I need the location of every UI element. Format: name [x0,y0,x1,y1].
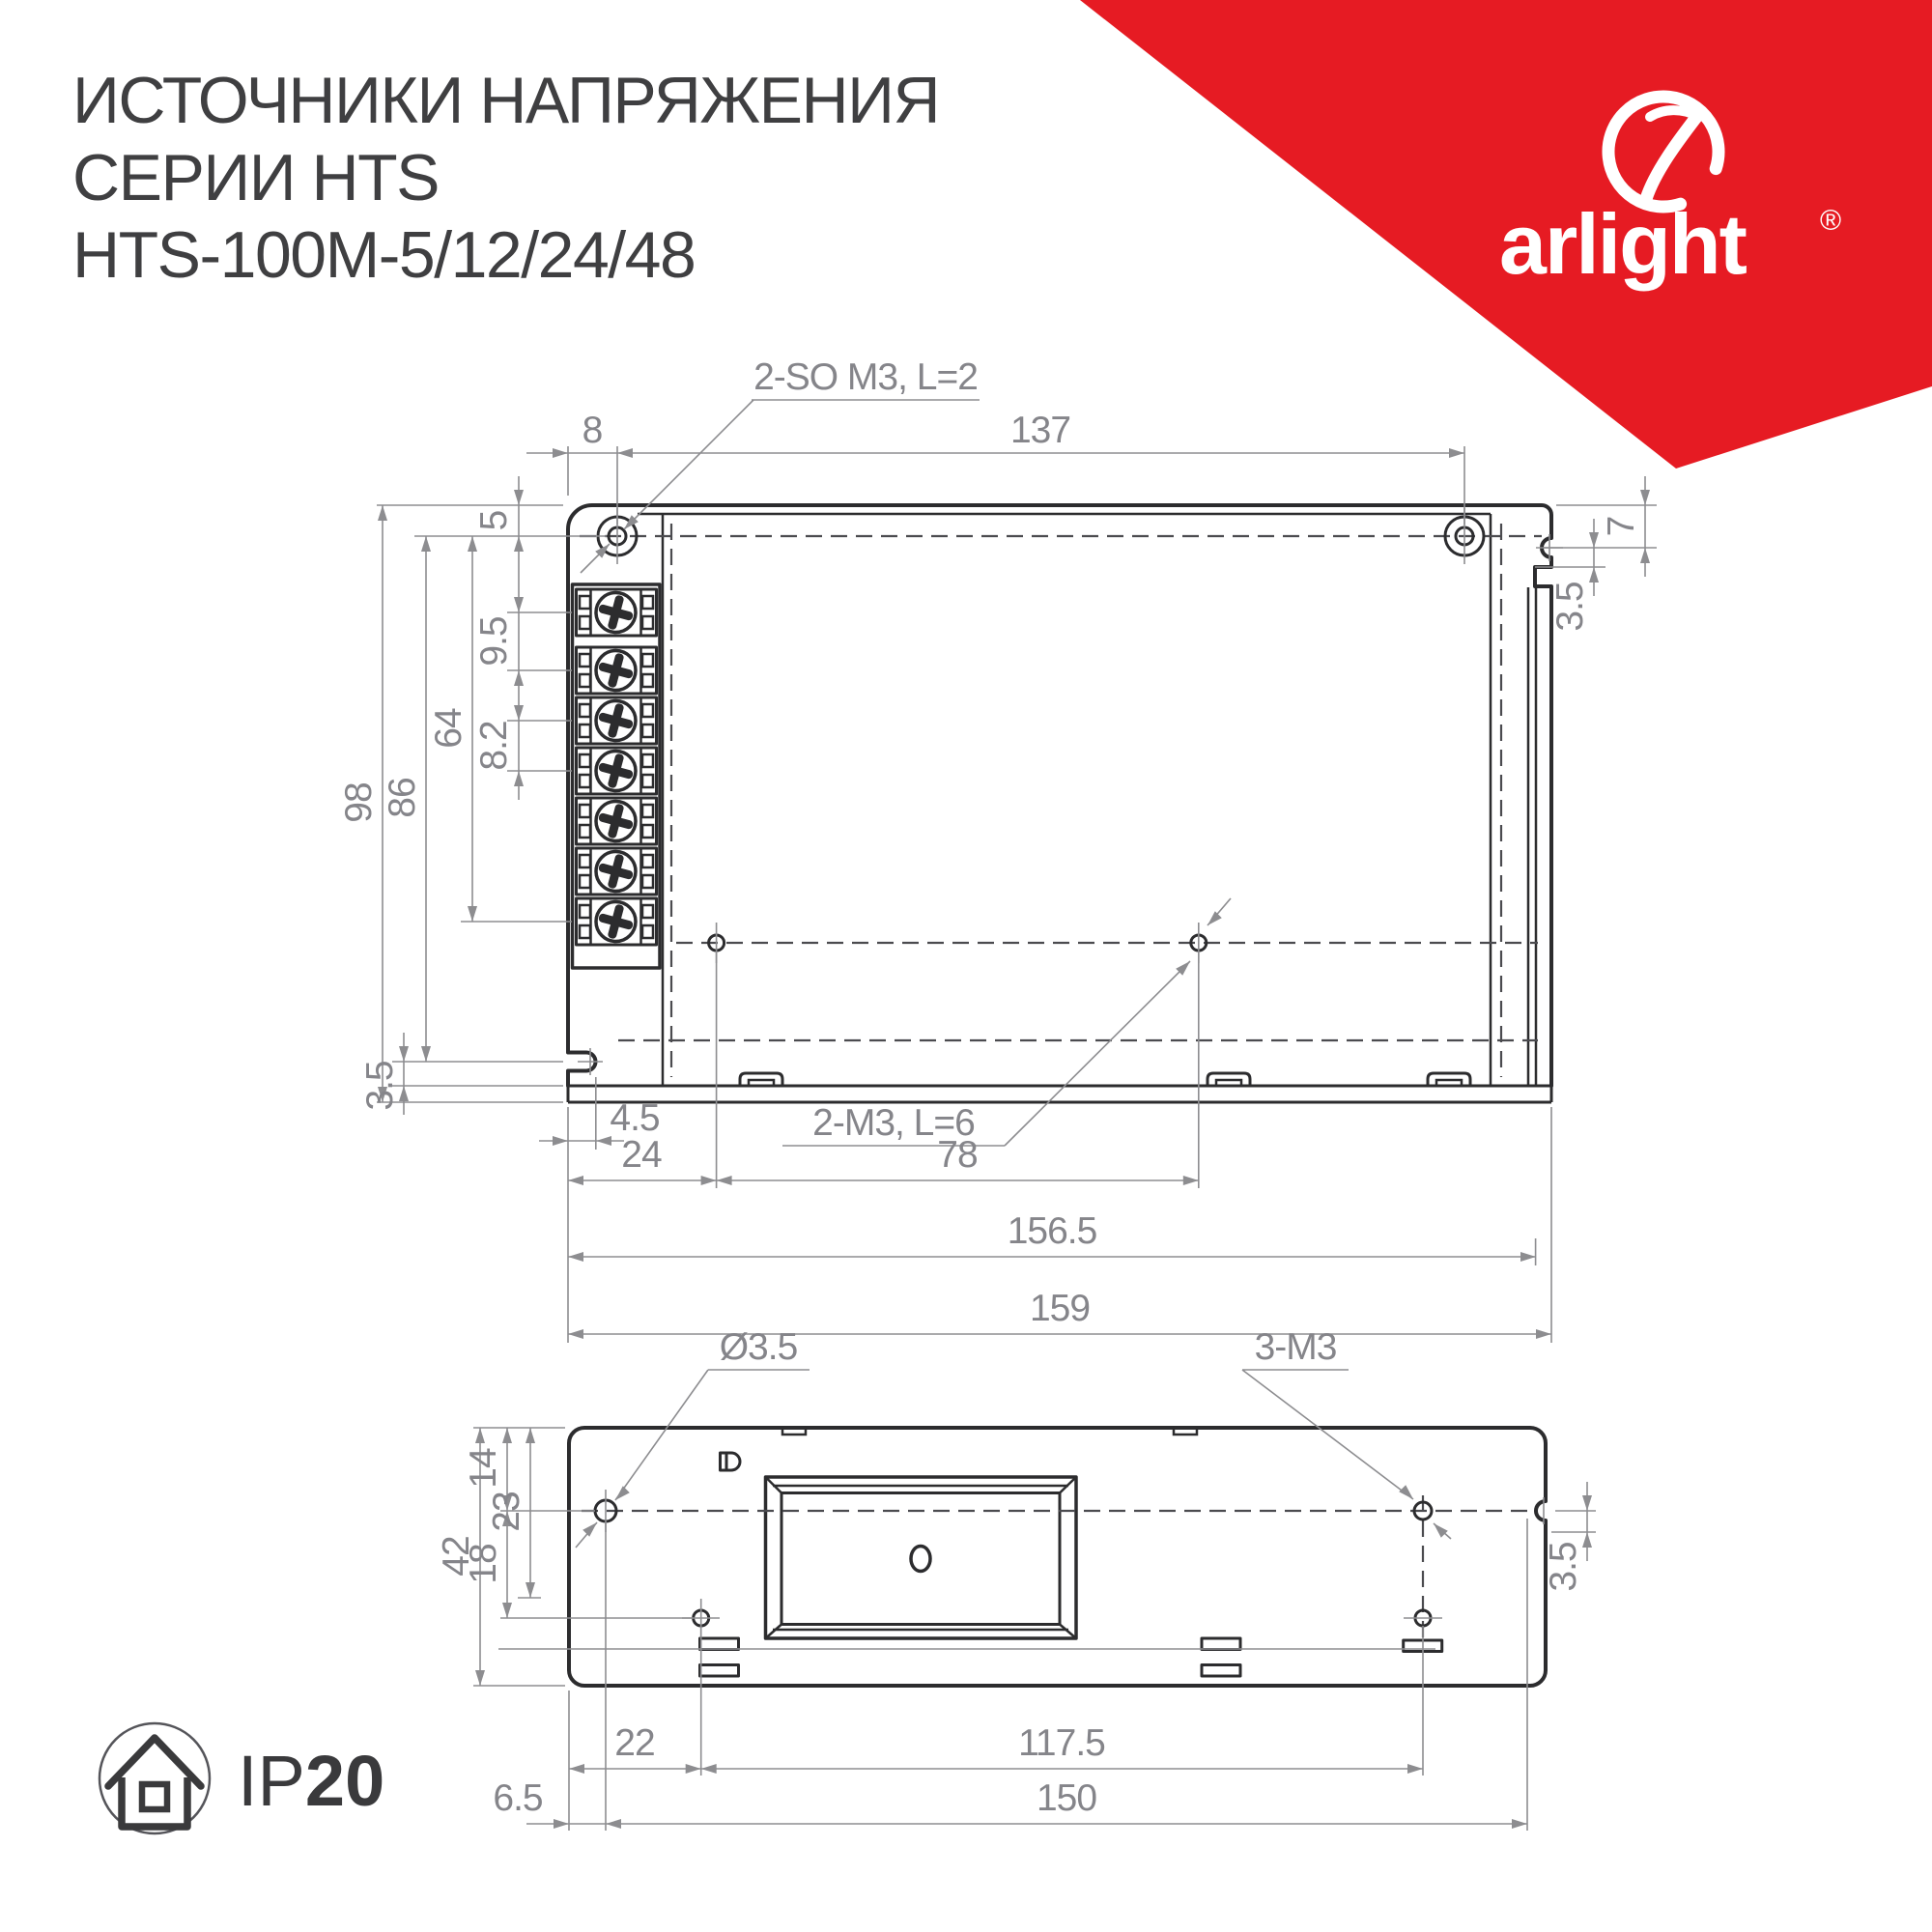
label-recess [766,1477,1077,1638]
case-outline-side-view [569,1428,1546,1686]
dim-98: 98 [338,782,380,822]
dim-3-5-left: 3.5 [359,1061,401,1111]
drawing-view-top: 2-SO M3, L=2 2-M3, L=6 8 137 5 9.5 8.2 6… [338,356,1657,1343]
dim-78: 78 [937,1134,977,1176]
dim-22: 22 [614,1722,654,1764]
dimension-labels-top-view: 8 137 5 9.5 8.2 64 86 98 7 3.5 3.5 4.5 2… [338,410,1642,1329]
title-line-1: ИСТОЧНИКИ НАПРЯЖЕНИЯ [72,64,939,137]
callouts-top-view: 2-SO M3, L=2 2-M3, L=6 [581,356,1231,1146]
arlight-banner: arlight ® [1080,0,1932,469]
dim-8: 8 [582,410,603,451]
callout-3m3: 3-M3 [1255,1326,1337,1368]
dim-23: 23 [486,1492,527,1531]
dim-156-5: 156.5 [1008,1210,1097,1252]
page-title: ИСТОЧНИКИ НАПРЯЖЕНИЯ СЕРИИ HTS HTS-100M-… [72,64,939,292]
dim-150: 150 [1037,1777,1096,1819]
dim-24: 24 [621,1134,662,1176]
title-line-2: СЕРИИ HTS [72,141,439,214]
dim-5: 5 [473,510,515,530]
dim-4-5: 4.5 [610,1097,660,1139]
dimension-labels-side-view: 42 14 23 18 3.5 22 117.5 6.5 150 [436,1448,1584,1819]
callout-d3-5: Ø3.5 [720,1326,798,1368]
dim-117-5: 117.5 [1018,1722,1105,1764]
case-outline-top-view [568,505,1551,1086]
dim-6-5: 6.5 [493,1777,543,1819]
callouts-side-view: Ø3.5 3-M3 [576,1326,1451,1548]
datasheet-page: arlight ® ИСТОЧНИКИ НАПРЯЖЕНИЯ СЕРИИ HTS… [0,0,1932,1932]
vent-slots [700,1638,1442,1676]
dim-86: 86 [382,778,423,817]
dim-3-5-right: 3.5 [1549,582,1591,632]
arlight-logo-text: arlight [1499,196,1747,292]
dim-137: 137 [1010,410,1070,451]
recess-hole [911,1547,930,1572]
terminal-block [573,584,661,968]
drawing-view-side: Ø3.5 3-M3 42 14 23 18 3.5 22 117.5 6.5 1… [436,1326,1596,1831]
bottom-flange [568,1073,1551,1102]
callout-2so-m3: 2-SO M3, L=2 [753,356,978,398]
registered-mark: ® [1820,205,1841,237]
dim-3-5-side: 3.5 [1543,1542,1584,1592]
ip20-badge: IP20 [99,1723,384,1833]
dim-18: 18 [463,1544,504,1583]
dim-14: 14 [463,1448,504,1489]
house-icon [108,1738,201,1827]
dim-8-2: 8.2 [473,721,515,770]
dim-9-5: 9.5 [473,616,515,667]
d-hole [721,1453,741,1470]
dim-7: 7 [1601,517,1642,537]
ip-rating-label: IP20 [238,1741,384,1821]
dim-159: 159 [1030,1288,1090,1329]
title-line-3: HTS-100M-5/12/24/48 [72,218,695,292]
dim-64: 64 [428,708,469,749]
